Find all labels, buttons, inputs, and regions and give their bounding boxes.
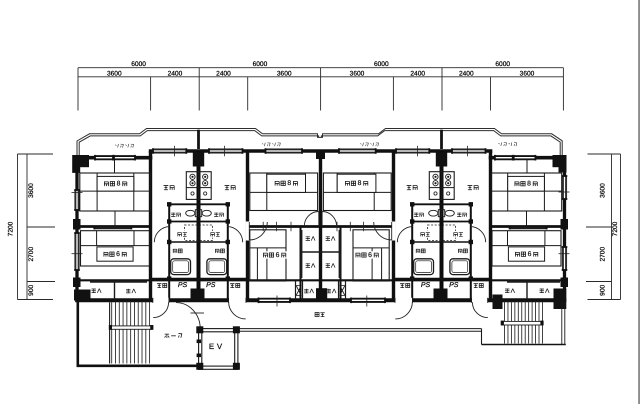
- svg-text:V: V: [217, 342, 223, 351]
- svg-text:3600: 3600: [107, 70, 122, 77]
- svg-text:8: 8: [358, 180, 362, 187]
- svg-text:6000: 6000: [131, 61, 146, 68]
- svg-text:6000: 6000: [374, 61, 389, 68]
- svg-text:6: 6: [276, 252, 280, 259]
- svg-text:E: E: [209, 342, 214, 351]
- svg-text:PS: PS: [449, 282, 459, 289]
- svg-text:PS: PS: [421, 282, 431, 289]
- svg-text:6: 6: [368, 252, 372, 259]
- svg-text:900: 900: [599, 284, 606, 295]
- svg-text:6: 6: [116, 251, 120, 258]
- svg-text:2400: 2400: [410, 70, 425, 77]
- svg-text:3600: 3600: [350, 70, 365, 77]
- svg-text:3600: 3600: [28, 183, 35, 198]
- svg-text:3600: 3600: [277, 70, 292, 77]
- svg-text:8: 8: [117, 181, 121, 188]
- svg-text:6000: 6000: [253, 61, 268, 68]
- svg-text:3600: 3600: [520, 70, 535, 77]
- svg-text:7200: 7200: [8, 221, 15, 236]
- svg-text:8: 8: [287, 180, 291, 187]
- svg-text:2400: 2400: [168, 70, 183, 77]
- svg-text:6: 6: [528, 251, 532, 258]
- svg-text:900: 900: [28, 284, 35, 295]
- svg-text:6000: 6000: [495, 61, 510, 68]
- svg-text:2400: 2400: [216, 70, 231, 77]
- svg-text:2700: 2700: [28, 247, 35, 262]
- svg-text:7200: 7200: [612, 221, 619, 236]
- svg-text:8: 8: [527, 181, 531, 188]
- svg-text:PS: PS: [206, 282, 216, 289]
- svg-text:3600: 3600: [599, 183, 606, 198]
- svg-text:PS: PS: [178, 282, 188, 289]
- svg-text:2400: 2400: [459, 70, 474, 77]
- svg-text:2700: 2700: [599, 247, 606, 262]
